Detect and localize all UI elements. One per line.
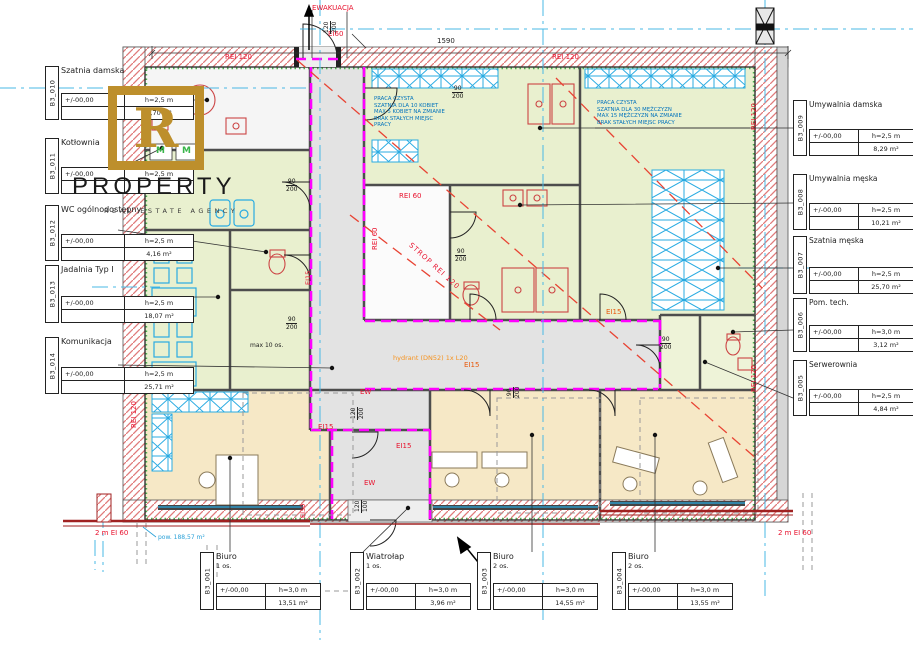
room-name: Biuro: [216, 552, 321, 561]
women-room-note: PRACA CZYSTA SZATNIA DLA 10 KOBIET MAX 5…: [374, 96, 445, 129]
callout-biuro-3: B3_003 Biuro 2 os. +/-00,00h=3,0 m 14,55…: [477, 552, 598, 610]
callout-wiatrolap: B3_002 Wiatrołap 1 os. +/-00,00h=3,0 m 3…: [350, 552, 471, 610]
evac-door-dim: 120200: [323, 21, 338, 34]
rei120-top-right: REI 120: [552, 54, 579, 61]
door-dim-5: 90200: [660, 336, 671, 351]
room-name: Serwerownia: [809, 360, 913, 369]
door-dim-2: 90200: [286, 178, 297, 193]
door-dim-4: 90200: [455, 248, 466, 263]
room-id-strip: B3_005: [793, 360, 807, 416]
ei15-vestibule-right: EI15: [396, 443, 411, 450]
room-id-strip: B3_002: [350, 552, 364, 610]
callout-umywalnia-damska: B3_009 Umywalnia damska +/-00,00h=2,5 m …: [793, 100, 913, 156]
room-data-table: +/-00,00h=2,5 m 25,70 m²: [809, 267, 913, 294]
room-data-table: +/-00,00h=3,0 m 14,55 m²: [493, 583, 598, 610]
rei60-vertical: REI 60: [372, 228, 379, 250]
max-occupancy-note: max 10 os.: [250, 343, 283, 349]
rei120-left-wall: REI 120: [131, 401, 138, 428]
evacuation-label: EWAKUACJA: [312, 5, 354, 12]
floorplan-page: EWAKUACJA EI60 120200 1590 1,88 REI 120 …: [0, 0, 913, 646]
room-data-table: +/-00,00h=2,5 m 8,29 m²: [809, 129, 913, 156]
fire-strip-label-right: 2 m EI 60: [778, 530, 811, 537]
ei15-wall-vertical: EI15: [305, 271, 312, 285]
room-data-table: +/-00,00h=2,5 m 4,16 m²: [61, 234, 194, 261]
room-data-table: +/-00,00h=2,5 m 4,84 m²: [809, 389, 913, 416]
ei30-vertical: EI30: [300, 504, 307, 518]
callout-pom-tech: B3_006 Pom. tech. +/-00,00h=3,0 m 3,12 m…: [793, 298, 913, 352]
room-data-table: +/-00,00h=3,0 m 13,55 m²: [628, 583, 733, 610]
ew-label-2: EW: [364, 480, 375, 487]
ew-label-1: EW: [360, 389, 371, 396]
door-dim-6: 90200: [506, 387, 521, 398]
area-note: pow. 188,57 m²: [158, 535, 205, 541]
callout-biuro-1: B3_001 Biuro 1 os. +/-00,00h=3,0 m 13,51…: [200, 552, 321, 610]
rei120-right-wall-2: REI 120: [751, 365, 758, 392]
room-name: Szatnia męska: [809, 236, 913, 245]
door-dim-1: 90200: [452, 85, 463, 100]
room-data-table: +/-00,00h=2,5 m 18,07 m²: [61, 296, 194, 323]
room-id-strip: B3_001: [200, 552, 214, 610]
callout-wc: B3_012 WC ogólnodostępny +/-00,00h=2,5 m…: [45, 205, 194, 261]
room-name: Kotłownia: [61, 138, 194, 147]
ei15-corridor: EI15: [464, 362, 479, 369]
callout-komunikacja: B3_014 Komunikacja +/-00,00h=2,5 m 25,71…: [45, 337, 194, 394]
room-occupancy: 2 os.: [628, 562, 733, 570]
room-id-strip: B3_004: [612, 552, 626, 610]
fire-column: [97, 494, 111, 522]
overall-dimension: 1590: [437, 38, 455, 45]
room-id-strip: B3_003: [477, 552, 491, 610]
room-name: Umywalnia męska: [809, 174, 913, 183]
room-name: Umywalnia damska: [809, 100, 913, 109]
room-id-strip: B3_009: [793, 100, 807, 156]
men-room-note: PRACA CZYSTA SZATNIA DLA 30 MĘŻCZYZN MAX…: [597, 100, 682, 126]
room-data-table: +/-00,00h=3,0 m 3,96 m²: [366, 583, 471, 610]
rei60-label: REI 60: [399, 193, 421, 200]
hydrant-note: hydrant (DN52) 1x L20: [393, 355, 468, 362]
room-occupancy: 2 os.: [493, 562, 598, 570]
room-name: Biuro: [493, 552, 598, 561]
room-data-table: +/-00,00h=2,5 m 25,71 m²: [61, 367, 194, 394]
callout-szatnia-damska: B3_010 Szatnia damska +/-00,00h=2,5 m 5,…: [45, 66, 194, 120]
room-id-strip: B3_006: [793, 298, 807, 352]
roof-column: [756, 8, 774, 44]
room-data-table: +/-00,00h=3,0 m 13,51 m²: [216, 583, 321, 610]
rei120-top-left: REI 120: [225, 54, 252, 61]
room-id-strip: B3_012: [45, 205, 59, 261]
room-name: Biuro: [628, 552, 733, 561]
ew-door-dim-1: 120200: [350, 407, 365, 420]
callout-jadalnia: B3_013 Jadalnia Typ I +/-00,00h=2,5 m 18…: [45, 265, 194, 323]
callout-umywalnia-meska: B3_008 Umywalnia męska +/-00,00h=2,5 m 1…: [793, 174, 913, 230]
room-occupancy: 1 os.: [366, 562, 471, 570]
rei120-right-wall: REI 120: [751, 103, 758, 130]
room-name: WC ogólnodostępny: [61, 205, 194, 214]
room-name: Jadalnia Typ I: [61, 265, 125, 274]
ew-door-dim-2: 120100: [354, 500, 369, 513]
room-id-strip: B3_011: [45, 138, 59, 194]
room-data-table: +/-00,00h=2,5 m 10,21 m²: [809, 203, 913, 230]
room-id-strip: B3_013: [45, 265, 59, 323]
callout-szatnia-meska: B3_007 Szatnia męska +/-00,00h=2,5 m 25,…: [793, 236, 913, 294]
room-data-table: +/-00,00h=2,5 m: [61, 167, 194, 194]
door-dim-3: 90200: [286, 316, 297, 331]
room-name: Pom. tech.: [809, 298, 913, 307]
room-name: Komunikacja: [61, 337, 194, 346]
ei15-corridor-east: EI15: [606, 309, 621, 316]
room-id-strip: B3_014: [45, 337, 59, 394]
room-id-strip: B3_007: [793, 236, 807, 294]
fire-strip-label-left: 2 m EI 60: [95, 530, 128, 537]
room-name: Wiatrołap: [366, 552, 471, 561]
callout-serwerownia: B3_005 Serwerownia +/-00,00h=2,5 m 4,84 …: [793, 360, 913, 416]
callout-biuro-4: B3_004 Biuro 2 os. +/-00,00h=3,0 m 13,55…: [612, 552, 733, 610]
room-id-strip: B3_008: [793, 174, 807, 230]
room-data-table: +/-00,00h=2,5 m 5,70 m²: [61, 93, 194, 120]
room-name: Szatnia damska: [61, 66, 194, 75]
room-occupancy: 1 os.: [216, 562, 321, 570]
callout-kotlownia: B3_011 Kotłownia +/-00,00h=2,5 m: [45, 138, 194, 194]
room-data-table: +/-00,00h=3,0 m 3,12 m²: [809, 325, 913, 352]
room-id-strip: B3_010: [45, 66, 59, 120]
ei15-vestibule-left: EI15: [318, 424, 333, 431]
